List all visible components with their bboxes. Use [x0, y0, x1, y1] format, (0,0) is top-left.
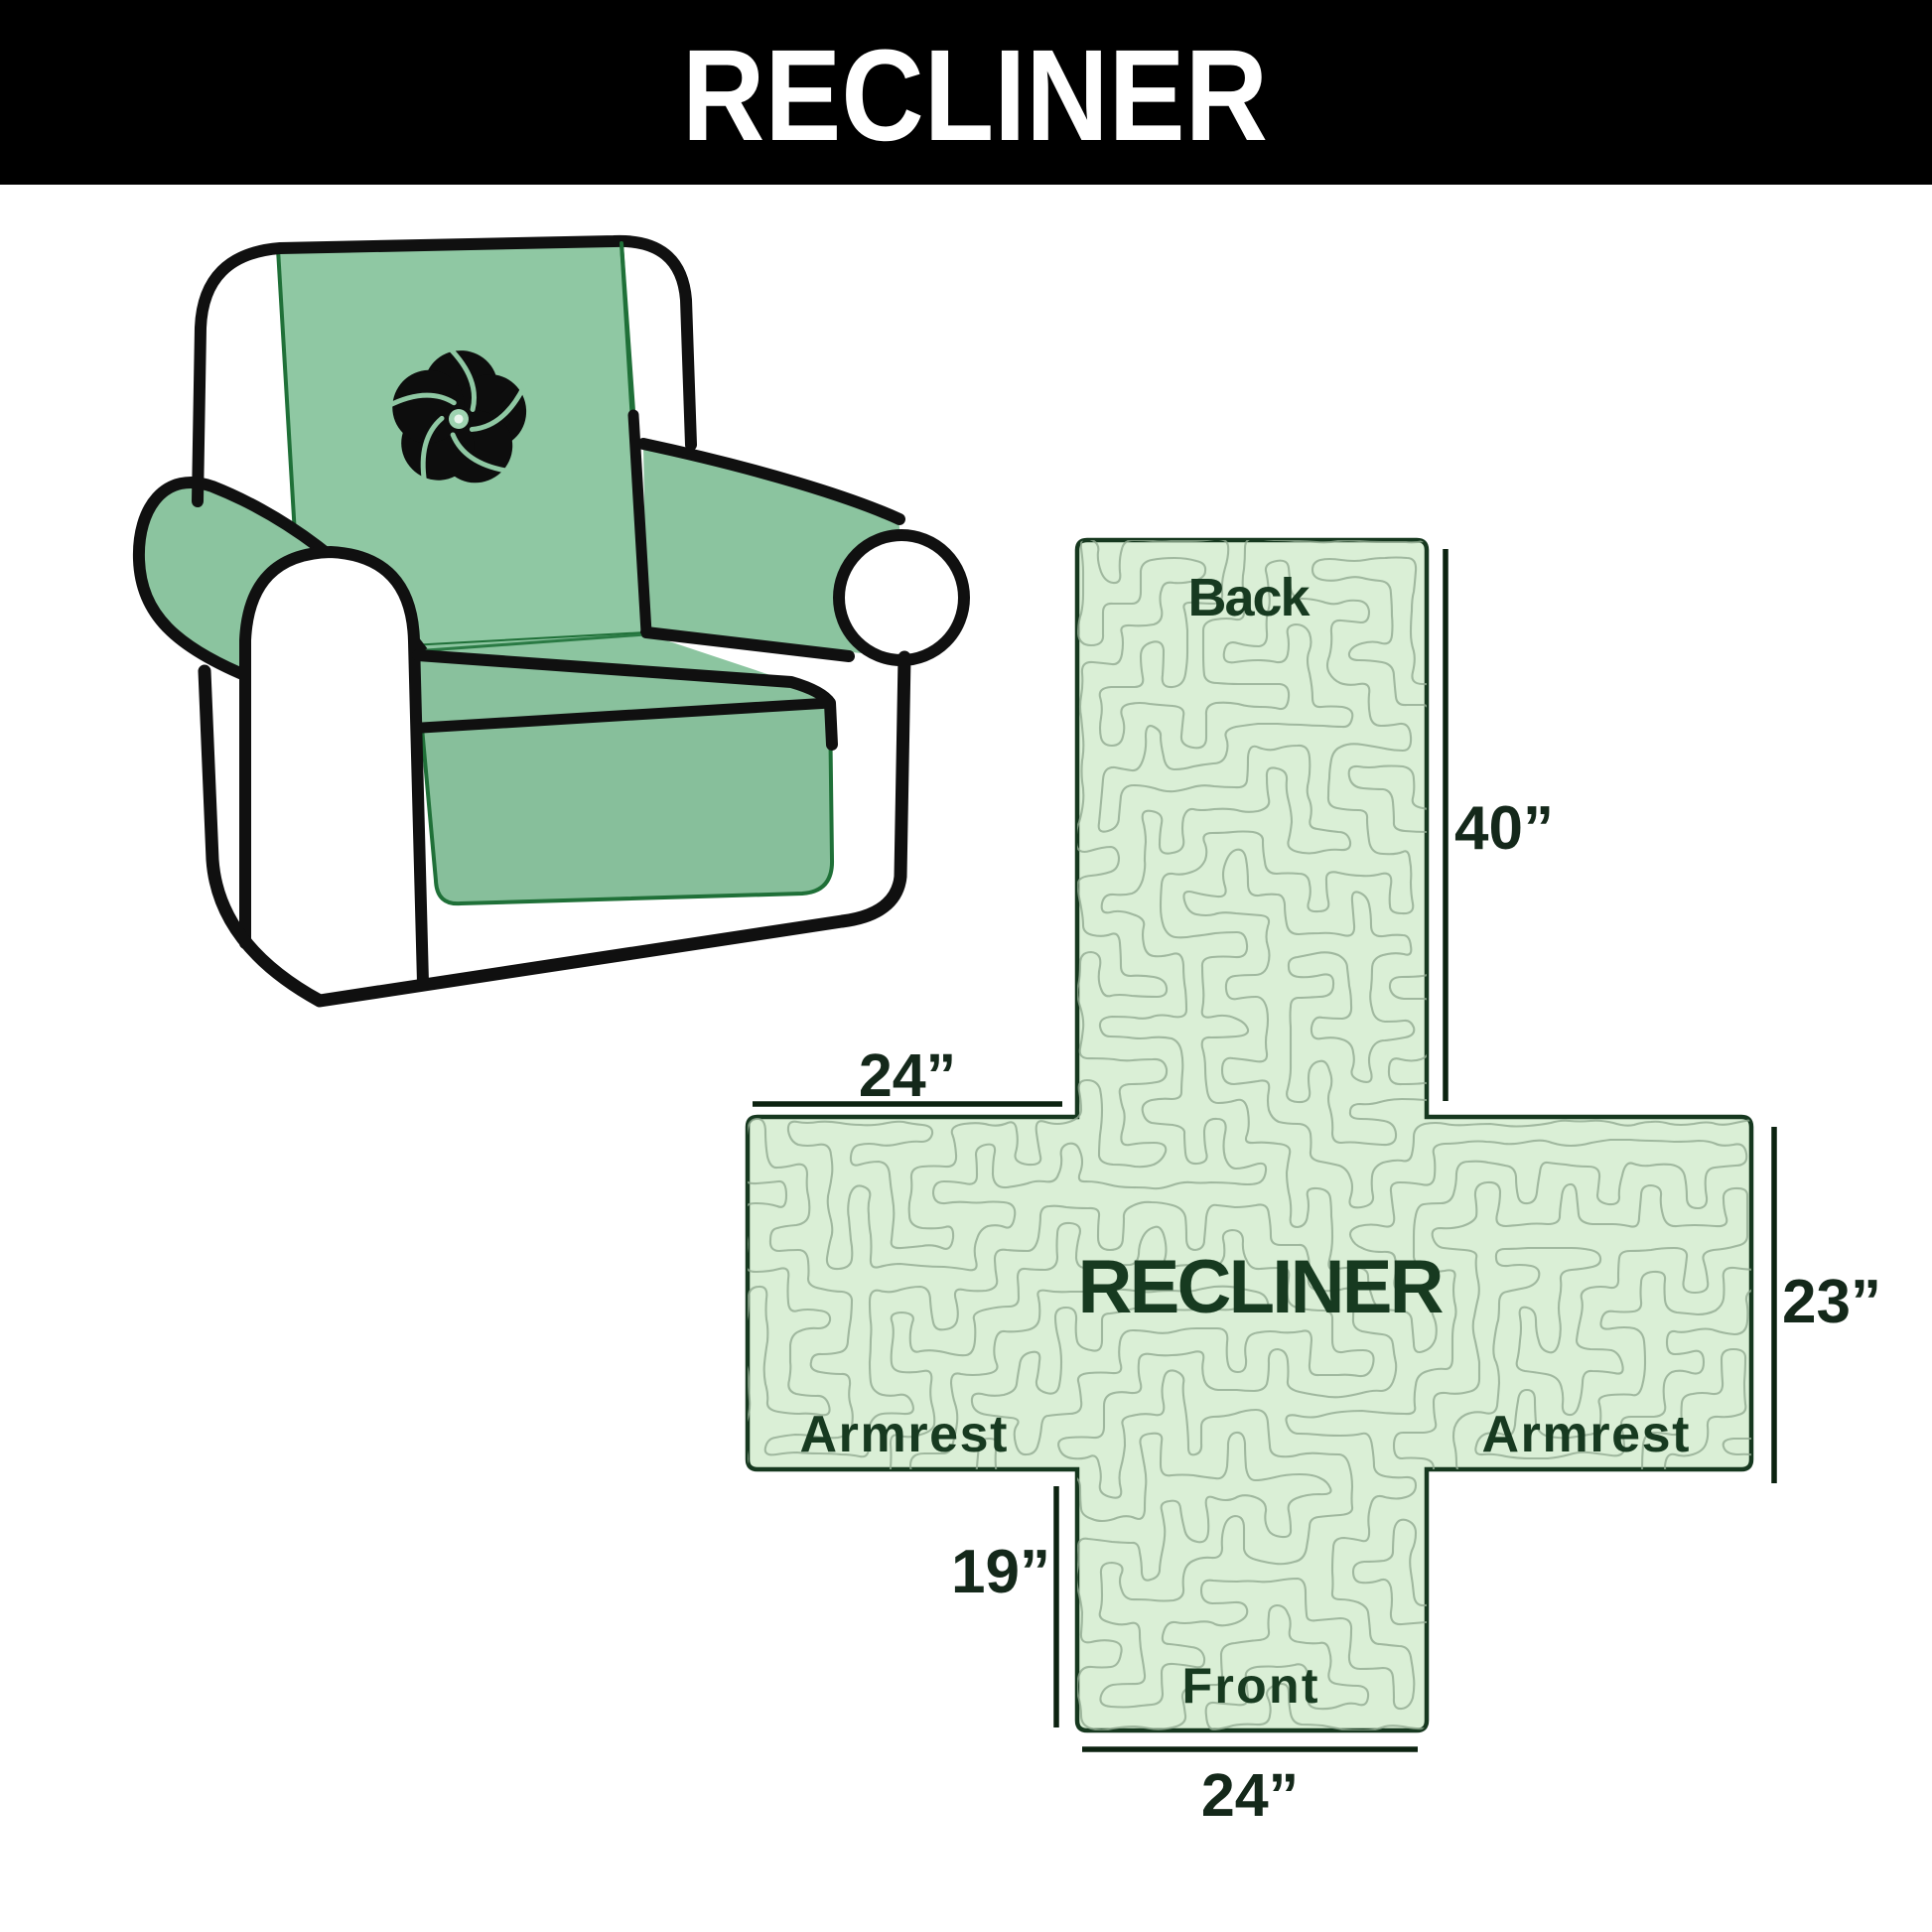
svg-text:40”: 40” [1454, 794, 1554, 863]
svg-text:Armrest: Armrest [1482, 1406, 1690, 1463]
svg-text:23”: 23” [1782, 1268, 1881, 1336]
svg-text:24”: 24” [1201, 1761, 1299, 1829]
svg-text:Front: Front [1182, 1658, 1318, 1714]
svg-text:RECLINER: RECLINER [682, 22, 1268, 168]
svg-text:24”: 24” [859, 1041, 956, 1109]
svg-text:Back: Back [1188, 568, 1311, 627]
svg-text:19”: 19” [951, 1538, 1050, 1606]
svg-text:Armrest: Armrest [800, 1406, 1008, 1463]
svg-text:RECLINER: RECLINER [1078, 1245, 1445, 1329]
